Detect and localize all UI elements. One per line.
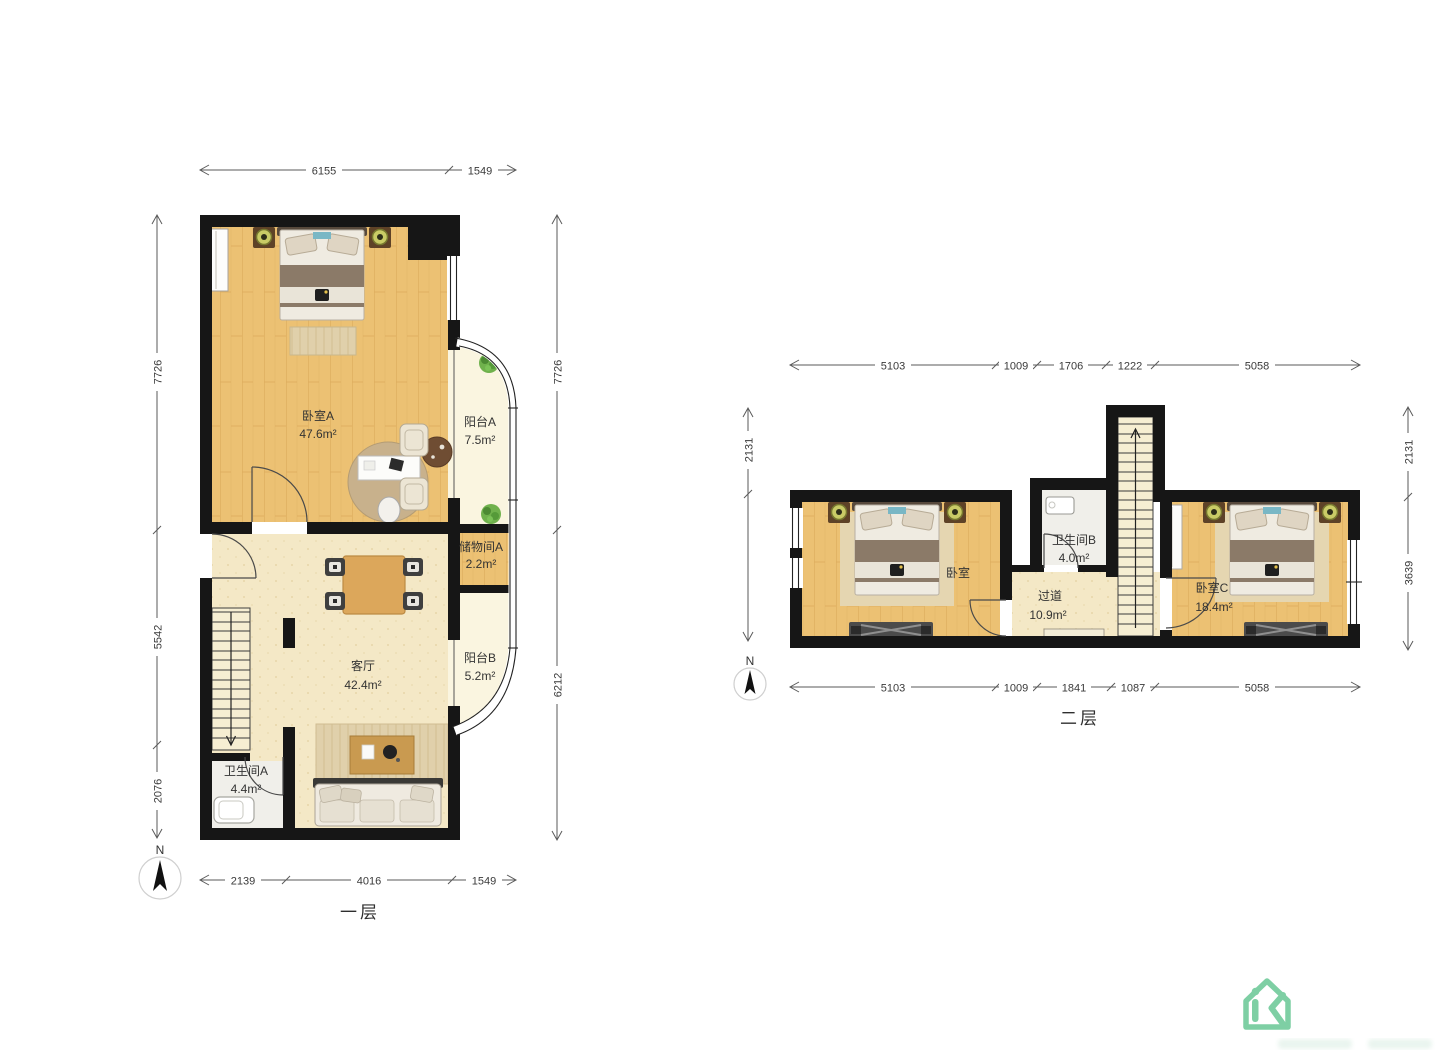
floor2-plan: 卧室 卫生间B 4.0m² 过道 10.9m² 卧室C 18.4m² 5103 … bbox=[734, 359, 1416, 729]
room-area-bedroom-c: 18.4m² bbox=[1195, 600, 1232, 614]
dim-f1-left-0: 7726 bbox=[153, 360, 165, 384]
room-label-balcony-b: 阳台B bbox=[464, 650, 496, 665]
room-label-living: 客厅 bbox=[351, 658, 375, 673]
dim-f2-top-1: 1009 bbox=[1004, 361, 1028, 373]
watermark-smudge bbox=[1278, 1039, 1432, 1049]
floor1-compass: N bbox=[139, 843, 181, 899]
table-decor bbox=[383, 745, 397, 759]
room-area-living: 42.4m² bbox=[344, 678, 381, 692]
dim-f1-bottom-2: 1549 bbox=[472, 876, 496, 888]
dim-f2-bottom-3: 1087 bbox=[1121, 683, 1145, 695]
dim-f1-bottom-0: 2139 bbox=[231, 876, 255, 888]
logo-i-stem bbox=[1252, 999, 1259, 1022]
dim-f2-right-0: 2131 bbox=[1404, 440, 1416, 464]
room-area-hallway: 10.9m² bbox=[1029, 608, 1066, 622]
room-area-bedroom-a: 47.6m² bbox=[299, 427, 336, 441]
plant-icon bbox=[481, 504, 501, 524]
compass-n-label-f2: N bbox=[746, 654, 755, 668]
dim-f1-right-0: 7726 bbox=[553, 360, 565, 384]
dim-f2-top-4: 5058 bbox=[1245, 361, 1269, 373]
room-area-balcony-a: 7.5m² bbox=[465, 433, 496, 447]
room-label-balcony-a: 阳台A bbox=[464, 414, 496, 429]
dim-f1-top-0: 6155 bbox=[312, 166, 336, 178]
armchair bbox=[400, 424, 428, 456]
floor1-label: 一层 bbox=[340, 903, 380, 922]
floor2-label: 二层 bbox=[1060, 709, 1100, 728]
room-label-bathroom-a: 卫生间A bbox=[224, 764, 268, 778]
dining-table bbox=[343, 556, 405, 614]
dim-f2-bottom-4: 5058 bbox=[1245, 683, 1269, 695]
floor1-plan: 卧室A 47.6m² 阳台A 7.5m² 储物间A 2.2m² 客厅 42.4m… bbox=[139, 164, 565, 923]
room-area-bathroom-b: 4.0m² bbox=[1059, 551, 1090, 565]
logo-k-shape bbox=[1272, 995, 1284, 1024]
dim-f2-left-0: 2131 bbox=[744, 438, 756, 462]
armchair bbox=[400, 478, 428, 510]
dim-f2-top-0: 5103 bbox=[881, 361, 905, 373]
dim-f2-top-2: 1706 bbox=[1059, 361, 1083, 373]
dim-f1-right-1: 6212 bbox=[553, 673, 565, 697]
room-label-hallway: 过道 bbox=[1038, 589, 1062, 603]
room-label-bedroom-a: 卧室A bbox=[302, 408, 334, 423]
floorplan-svg: 卧室A 47.6m² 阳台A 7.5m² 储物间A 2.2m² 客厅 42.4m… bbox=[0, 0, 1440, 1050]
tv-cabinet bbox=[849, 622, 933, 638]
dim-f1-top-1: 1549 bbox=[468, 166, 492, 178]
dim-f2-bottom-1: 1009 bbox=[1004, 683, 1028, 695]
stairs-floor1 bbox=[212, 608, 250, 750]
sofa bbox=[313, 778, 443, 826]
dim-f2-bottom-2: 1841 bbox=[1062, 683, 1086, 695]
room-label-bedroom-c: 卧室C bbox=[1196, 580, 1229, 595]
chair bbox=[378, 497, 400, 523]
room-label-bathroom-b: 卫生间B bbox=[1052, 533, 1096, 547]
room-area-storage-a: 2.2m² bbox=[466, 557, 497, 571]
logo-i-dot bbox=[1252, 988, 1260, 996]
room-label-bedroom: 卧室 bbox=[946, 565, 970, 580]
dim-f1-bottom-1: 4016 bbox=[357, 876, 381, 888]
dim-f2-right-1: 3639 bbox=[1404, 561, 1416, 585]
room-area-balcony-b: 5.2m² bbox=[465, 669, 496, 683]
stairs-floor2 bbox=[1118, 417, 1153, 636]
dim-f1-left-2: 2076 bbox=[153, 779, 165, 803]
room-area-bathroom-a: 4.4m² bbox=[231, 782, 262, 796]
dim-f2-bottom-0: 5103 bbox=[881, 683, 905, 695]
tv-cabinet-c bbox=[1244, 622, 1328, 638]
dim-f1-left-1: 5542 bbox=[153, 625, 165, 649]
floorplan-canvas: 卧室A 47.6m² 阳台A 7.5m² 储物间A 2.2m² 客厅 42.4m… bbox=[0, 0, 1440, 1050]
coffee-table bbox=[350, 736, 414, 774]
dim-f2-top-3: 1222 bbox=[1118, 361, 1142, 373]
floor2-compass: N bbox=[734, 654, 766, 700]
room-label-storage-a: 储物间A bbox=[459, 539, 503, 554]
brand-logo bbox=[1246, 981, 1288, 1027]
sink bbox=[1046, 497, 1074, 514]
bed-rug bbox=[290, 327, 356, 355]
compass-n-label-f1: N bbox=[156, 843, 165, 857]
